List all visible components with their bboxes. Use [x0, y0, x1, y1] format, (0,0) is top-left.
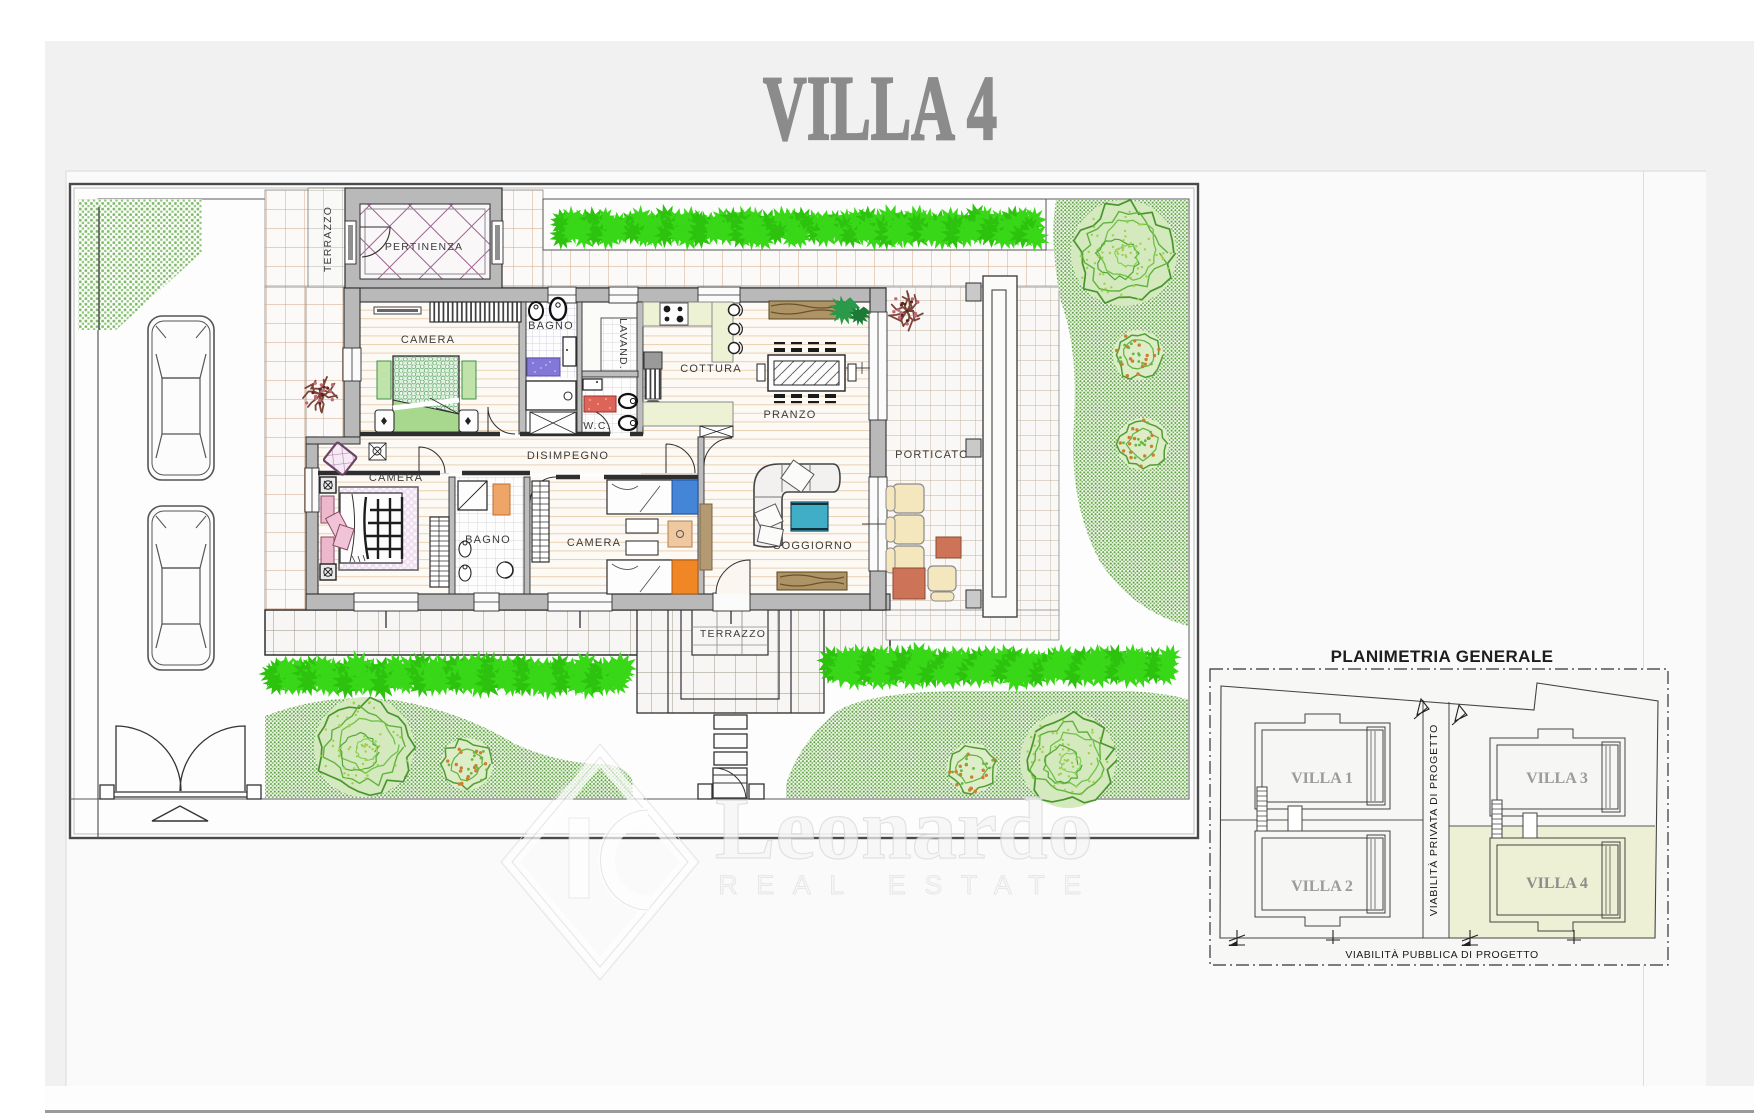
svg-text:PLANIMETRIA GENERALE: PLANIMETRIA GENERALE — [1331, 647, 1554, 666]
svg-text:CAMERA: CAMERA — [369, 472, 423, 484]
svg-text:BAGNO: BAGNO — [528, 320, 574, 332]
svg-text:VILLA 3: VILLA 3 — [1526, 770, 1588, 787]
svg-text:VIABILITÀ PUBBLICA DI PROGETTO: VIABILITÀ PUBBLICA DI PROGETTO — [1345, 948, 1538, 961]
svg-text:COTTURA: COTTURA — [680, 363, 742, 375]
svg-text:PERTINENZA: PERTINENZA — [385, 241, 463, 253]
svg-text:LAVAND.: LAVAND. — [617, 318, 629, 370]
svg-text:DISIMPEGNO: DISIMPEGNO — [527, 450, 609, 462]
svg-text:PORTICATO: PORTICATO — [895, 449, 969, 461]
svg-text:VILLA 4: VILLA 4 — [1526, 875, 1588, 892]
svg-text:TERRAZZO: TERRAZZO — [700, 628, 766, 640]
svg-text:VIABILITÀ PRIVATA DI PROGETTO: VIABILITÀ PRIVATA DI PROGETTO — [1427, 724, 1440, 916]
svg-text:VILLA 4: VILLA 4 — [763, 57, 997, 159]
svg-text:Leonardo: Leonardo — [715, 781, 1093, 878]
svg-text:REAL ESTATE: REAL ESTATE — [718, 870, 1100, 900]
svg-text:CAMERA: CAMERA — [401, 334, 455, 346]
svg-text:TERRAZZO: TERRAZZO — [322, 206, 334, 272]
svg-text:W.C.: W.C. — [583, 420, 611, 432]
svg-text:VILLA 1: VILLA 1 — [1291, 770, 1353, 787]
svg-text:SOGGIORNO: SOGGIORNO — [773, 540, 853, 552]
svg-text:PRANZO: PRANZO — [763, 409, 816, 421]
svg-text:VILLA 2: VILLA 2 — [1291, 878, 1353, 895]
svg-text:CAMERA: CAMERA — [567, 537, 621, 549]
svg-text:BAGNO: BAGNO — [465, 534, 511, 546]
